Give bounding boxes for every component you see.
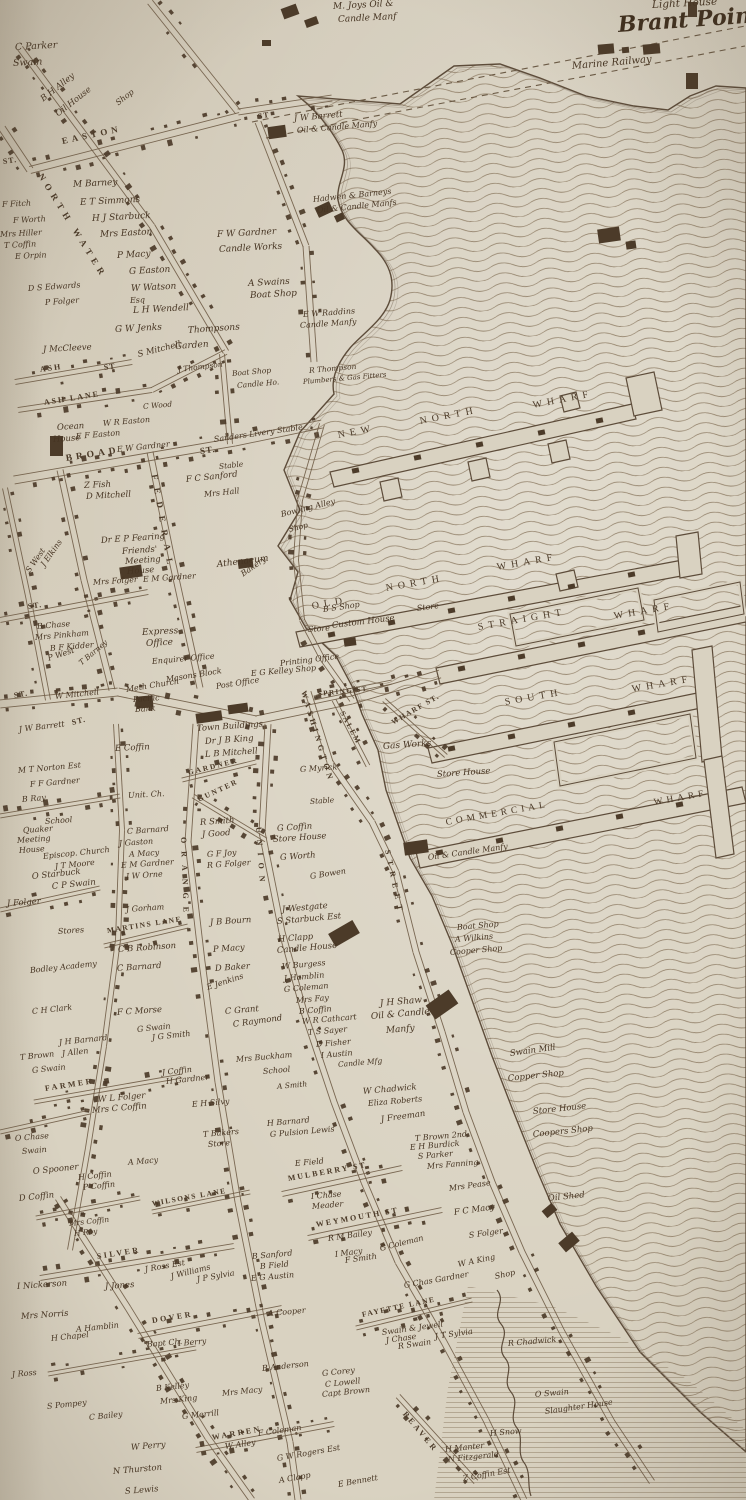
map-label: Candle Mfg: [338, 1057, 383, 1068]
map-label: Express: [142, 627, 179, 638]
wharf-label: WHARF: [631, 674, 693, 694]
street-label: SILVER: [96, 1246, 141, 1261]
map-label: G Pulsion Lewis: [270, 1125, 335, 1139]
map-label: B Ray: [22, 794, 47, 804]
map-label: Candle Manfy: [300, 318, 357, 330]
map-label: E M Gardner: [143, 572, 196, 584]
map-label: I Nickerson: [17, 1280, 68, 1292]
map-label: H Ray: [74, 1228, 98, 1238]
map-label: W R Cathcart: [302, 1013, 357, 1026]
map-label: Bowling Alley: [280, 498, 336, 519]
map-label: Shop: [115, 88, 136, 107]
street-label: ST.: [27, 601, 42, 611]
street-label: GARDNER: [187, 757, 239, 777]
map-label: H Snow: [490, 1427, 522, 1438]
map-label: F Fitch: [2, 199, 31, 209]
map-label: Mrs Norris: [21, 1310, 69, 1322]
map-label: E F Easton: [76, 429, 121, 441]
map-label: D Fisher: [316, 1038, 351, 1049]
street-label: ST: [103, 362, 116, 372]
map-label: P Macy: [213, 944, 245, 955]
map-label: Thompsons: [188, 323, 240, 336]
map-label: School: [263, 1066, 291, 1076]
map-label: F Worth: [13, 215, 46, 225]
map-label: G Chas Gardner: [403, 1271, 469, 1290]
map-label: D Baker: [215, 963, 251, 974]
street-label: FAYETTE LANE: [361, 1296, 436, 1319]
map-label: J T Sylvia: [434, 1328, 473, 1341]
map-label: Store: [308, 624, 331, 634]
map-label: B Kelley: [156, 1382, 190, 1393]
map-label: Boat Shop: [457, 920, 499, 932]
map-label: F C Sanford: [186, 471, 239, 485]
map-label: Office: [146, 639, 173, 649]
map-label: E G Kelley Shop: [251, 664, 317, 678]
map-label: Eliza Roberts: [368, 1095, 423, 1108]
map-label: H J Starbuck: [92, 212, 151, 224]
map-label: Sanders Livery Stable: [213, 424, 303, 444]
map-label: Mrs Pinkham: [35, 629, 90, 642]
map-label: M. Joys Oil &: [333, 0, 394, 12]
map-label: R Swain: [397, 1338, 431, 1351]
map-label: C Barnard: [127, 825, 169, 836]
map-label: W Watson: [131, 283, 177, 294]
map-label: Mrs Easton: [100, 228, 153, 240]
map-label: T Brown: [20, 1050, 55, 1062]
map-label: G Coleman: [284, 982, 329, 994]
map-label: Meeting: [17, 835, 51, 845]
map-label: E H Silvy: [192, 1098, 230, 1109]
map-label: A Macy: [128, 1156, 159, 1167]
map-label: S Mitchell: [137, 340, 182, 359]
street-label: EASTON: [61, 124, 122, 145]
map-label: C Raymond: [232, 1014, 282, 1029]
street-label: MARTINS LANE: [106, 915, 182, 934]
map-label: R Smith: [200, 817, 235, 828]
map-label: G Worth: [280, 852, 316, 863]
map-label: E Orpin: [15, 251, 47, 261]
street-label: ST.: [2, 156, 17, 166]
map-label: N Thurston: [113, 1464, 163, 1477]
map-label: E G Austin: [251, 1271, 295, 1283]
street-label: ST.: [13, 690, 28, 700]
map-label: F Smith: [344, 1253, 377, 1265]
map-label: J Gorham: [126, 903, 165, 914]
map-label: Shop: [494, 1269, 516, 1281]
historic-harbor-map: Brant PoinLight HouseMarine RailwayM. Jo…: [0, 0, 746, 1500]
street-label: BROAD: [65, 447, 120, 465]
map-label: Candle Ho.: [237, 378, 280, 389]
map-label: G Swain: [32, 1063, 66, 1074]
map-label: O Swain: [535, 1388, 569, 1399]
map-label: J W Barrett: [19, 720, 66, 734]
map-label: G F Joy: [207, 849, 237, 859]
map-label: J Freeman: [380, 1110, 425, 1125]
street-label: SALEM: [339, 710, 363, 746]
map-label: J H Barnard: [59, 1034, 108, 1047]
map-label: G Coleman: [379, 1234, 424, 1253]
map-label: A Cooper: [268, 1307, 306, 1318]
map-label: P Coffin: [83, 1181, 116, 1192]
map-label: Mrs Buckham: [236, 1051, 293, 1064]
map-label: E W Gardner: [117, 440, 171, 453]
map-label: Post Office: [215, 676, 259, 691]
map-label: J Thompson: [178, 361, 223, 374]
wharf-label: NORTH: [419, 406, 479, 427]
map-label: G W Jenks: [115, 324, 162, 335]
map-label: C Bailey: [89, 1411, 123, 1422]
wharf-label: WHARF: [653, 790, 708, 809]
map-label: Gas Works: [383, 740, 432, 752]
map-labels-layer: Brant PoinLight HouseMarine RailwayM. Jo…: [0, 0, 746, 1500]
map-label: Stores: [58, 926, 85, 936]
map-label: J B Bourn: [210, 916, 252, 927]
map-label: A Smith: [277, 1080, 308, 1090]
map-label: Candle Works: [219, 243, 283, 255]
map-label: S Folger: [468, 1227, 503, 1240]
map-label: Mrs Coffin: [69, 1216, 110, 1228]
map-label: Candle Manf: [338, 13, 397, 25]
map-label: M T Norton Est: [18, 762, 82, 775]
map-label: E Coffin: [115, 743, 150, 753]
map-label: E Field: [295, 1157, 324, 1167]
map-label: Stable: [310, 796, 335, 805]
map-label: J Jones: [105, 1281, 135, 1292]
map-label: Manfy: [386, 1025, 415, 1036]
street-label: FARMER: [44, 1077, 94, 1093]
map-label: Pacific: [133, 694, 160, 704]
map-label: Z Fish: [84, 481, 111, 491]
map-label: Mrs C Coffin: [92, 1102, 147, 1115]
street-label: DOVER: [151, 1311, 193, 1325]
map-label: W A King: [457, 1253, 496, 1269]
map-label: B Anderson: [262, 1360, 310, 1373]
map-label: House: [19, 845, 45, 855]
map-label: Slaughter House: [544, 1399, 613, 1416]
map-label: E Bennett: [337, 1474, 378, 1489]
map-label: L B Mitchell: [205, 747, 258, 759]
street-label: WHARF ST.: [390, 692, 441, 726]
map-label: R G Folger: [207, 859, 251, 870]
map-label: J McCleeve: [43, 343, 92, 354]
street-label: ASH: [39, 363, 62, 374]
map-label: Mrs Hiller: [0, 229, 42, 239]
map-label: R Chadwick: [508, 1336, 557, 1348]
map-label: Esq: [130, 296, 145, 305]
map-label: C Grant: [225, 1005, 260, 1016]
wharf-label: STRAIGHT: [477, 608, 567, 633]
wharf-label: WHARF: [613, 601, 675, 621]
map-label: R Thompson: [309, 363, 357, 375]
wharf-label: NORTH: [385, 574, 445, 594]
map-label: A Macy: [129, 849, 160, 859]
map-label: Swain Mill: [509, 1044, 556, 1059]
wharf-label: COMMERCIAL: [445, 801, 549, 828]
map-label: Bank: [135, 705, 156, 714]
map-label: C B Robinson: [118, 942, 177, 955]
map-label: D Mitchell: [86, 491, 131, 502]
map-label: G Merrill: [182, 1409, 220, 1421]
map-label: R M Bailey: [327, 1229, 372, 1243]
map-label: W Burgess: [282, 959, 326, 971]
map-label: Mrs King: [160, 1394, 198, 1406]
map-label: J Allen: [62, 1047, 89, 1058]
map-label: F W Gardner: [217, 228, 277, 240]
map-label: Meader: [312, 1200, 344, 1211]
map-label: T Bakers: [203, 1128, 240, 1139]
map-label: Store: [416, 602, 439, 613]
map-label: Store: [208, 1139, 231, 1149]
wharf-label: WHARF: [532, 389, 594, 410]
street-label: UNION: [254, 827, 266, 889]
map-label: Mrs Folger: [93, 576, 138, 587]
map-label: G W Rogers Est: [276, 1444, 340, 1463]
map-label: H Gardner: [166, 1073, 210, 1085]
map-label: C Parker: [15, 41, 58, 53]
map-label: J W Orne: [126, 870, 163, 881]
map-label: P Folger: [45, 297, 80, 307]
map-label: J Ross: [12, 1369, 37, 1379]
map-label: T Coffin: [4, 240, 37, 250]
map-label: Copper Shop: [508, 1069, 565, 1083]
map-label: Shop: [288, 521, 309, 533]
map-label: D Coffin: [19, 1191, 55, 1203]
map-label: Mrs Fanning: [427, 1159, 479, 1171]
map-label: F C Macy: [453, 1203, 495, 1217]
map-label: W Mitchell: [55, 688, 100, 701]
map-label: H Chapel: [51, 1331, 90, 1343]
map-label: Store House: [437, 767, 491, 779]
map-label: A Swains: [248, 278, 290, 289]
map-label: Coopers Shop: [533, 1125, 594, 1140]
map-label: J G Smith: [152, 1030, 191, 1042]
map-label: P Macy: [117, 250, 151, 261]
map-label: Mrs Macy: [222, 1386, 263, 1398]
map-label: Swain: [13, 57, 43, 68]
map-label: Swain: [22, 1146, 47, 1156]
street-label: ST: [257, 111, 270, 121]
map-label: D S Edwards: [28, 281, 81, 293]
map-label: Store House: [533, 1102, 587, 1116]
map-label: W R Easton: [103, 416, 151, 428]
map-label: Z Coffin Est: [462, 1467, 511, 1483]
street-label: STREET: [383, 849, 405, 917]
map-label: E Jenkins: [206, 972, 245, 991]
map-label: Oil & Candle Manfy: [427, 843, 508, 862]
map-label: J Gaston: [119, 838, 154, 848]
map-label: Meth Church: [125, 678, 179, 694]
map-label: Boat Shop: [250, 290, 297, 301]
wharf-label: WHARF: [496, 552, 558, 572]
map-label: B Field: [260, 1260, 290, 1270]
map-label: Oil & Candle: [371, 1008, 430, 1022]
map-label: O Chase: [15, 1132, 50, 1143]
wharf-label: NEW: [337, 424, 376, 441]
street-label: ST.: [199, 445, 216, 456]
street-label: GUNTER: [196, 778, 239, 803]
map-label: Mrs Pease: [448, 1179, 491, 1193]
map-label: W Perry: [131, 1441, 166, 1452]
map-label: J Good: [202, 829, 231, 839]
map-label: Town Buildings: [197, 720, 264, 733]
map-label: Cooper Shop: [450, 944, 503, 957]
map-label: E M Gardner: [121, 858, 174, 870]
map-label: Oil Shed: [548, 1191, 586, 1203]
map-label: Marine Railway: [572, 55, 653, 72]
map-label: E T Simmons: [80, 196, 141, 208]
street-label: ASH LANE: [43, 390, 100, 407]
map-label: Dr J B King: [205, 735, 254, 747]
street-label: ST.: [71, 716, 87, 727]
map-label: Custom House: [331, 614, 395, 630]
map-label: W Alley: [224, 1439, 256, 1451]
map-label: S Pompey: [47, 1399, 87, 1411]
map-label: Store House: [273, 832, 327, 844]
map-label: C H Clark: [32, 1004, 73, 1016]
map-label: F C Morse: [117, 1006, 163, 1018]
street-label: BEAVER: [401, 1410, 439, 1454]
map-label: I Berry: [178, 1338, 207, 1348]
map-label: O Spooner: [33, 1163, 79, 1176]
map-label: Stable: [219, 460, 244, 470]
street-label: WEYMOUTH ST: [315, 1206, 399, 1228]
map-label: Boat Shop: [232, 367, 272, 378]
map-label: F F Gardner: [30, 777, 81, 789]
map-label: C Barnard: [117, 962, 162, 974]
map-label: T S Sayer: [308, 1026, 348, 1037]
map-label: Enquirer Office: [152, 653, 215, 666]
map-label: J Folger: [7, 898, 41, 909]
map-label: M Barney: [73, 179, 118, 190]
map-label: Dr E P Fearing: [101, 533, 166, 546]
map-label: C P Swain: [52, 878, 97, 891]
map-label: Mrs Fay: [296, 994, 330, 1005]
street-label: WILSONS LANE: [151, 1187, 227, 1208]
street-label: ORANGE: [179, 837, 190, 920]
map-label: Unit. Ch.: [128, 790, 165, 800]
map-label: C Wood: [143, 400, 173, 410]
map-label: Mrs Hall: [204, 487, 240, 499]
street-label: SPRING ST: [318, 686, 369, 698]
map-label: A Wilkins: [455, 933, 494, 944]
map-label: A Clapp: [278, 1472, 311, 1485]
map-label: L H Wendell: [133, 304, 189, 316]
wharf-label: SOUTH: [504, 688, 563, 708]
map-label: G Easton: [129, 266, 171, 277]
map-label: G Bowen: [309, 867, 346, 881]
map-label: Bodley Academy: [30, 960, 98, 975]
map-label: F Coleman: [257, 1424, 302, 1438]
map-label: S Lewis: [125, 1485, 159, 1496]
